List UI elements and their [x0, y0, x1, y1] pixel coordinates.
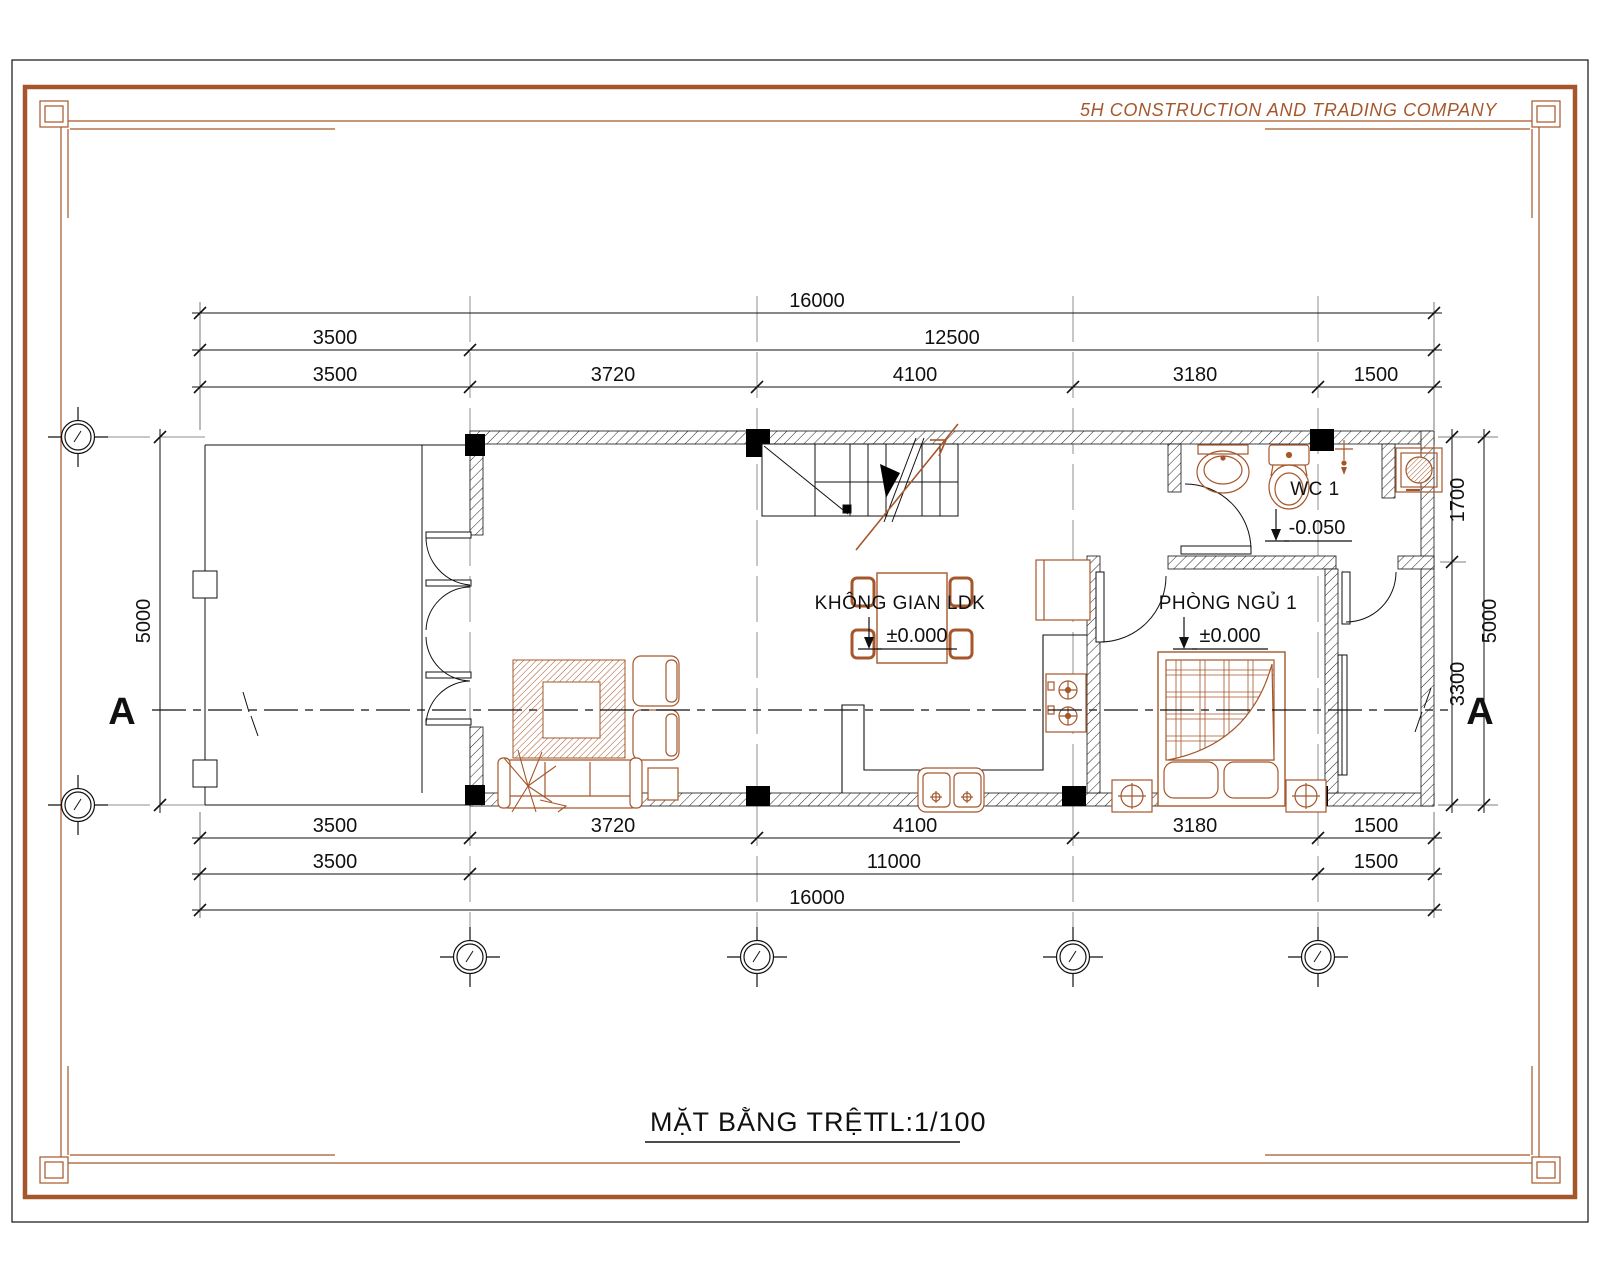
- dim-top-r3-4: 1500: [1354, 364, 1399, 386]
- armchairs: [633, 656, 679, 760]
- sheet-border: [12, 60, 1588, 1222]
- drawing-title: MẶT BẰNG TRỆT: [650, 1106, 881, 1137]
- dim-bot-r1-3: 3180: [1173, 815, 1218, 837]
- dim-top-r3-2: 4100: [893, 364, 938, 386]
- company-name: 5H CONSTRUCTION AND TRADING COMPANY: [1080, 100, 1498, 120]
- level-wc: -0.050: [1289, 517, 1346, 539]
- grid-bubble-2: [727, 927, 787, 987]
- dim-top-r3-3: 3180: [1173, 364, 1218, 386]
- label-ldk: KHÔNG GIAN LDK: [815, 592, 986, 614]
- dimension-text-top: 16000 3500 12500 3500 3720 4100 3180 150…: [313, 290, 1399, 386]
- washbasin: [1197, 445, 1249, 493]
- dim-top-r2-1: 12500: [924, 327, 980, 349]
- dim-bot-r2-1: 11000: [867, 851, 921, 873]
- section-label-right: A: [1466, 691, 1493, 733]
- kitchen-sink: [918, 768, 984, 812]
- section-line: A A: [108, 688, 1493, 736]
- floor-plan-drawing: 5H CONSTRUCTION AND TRADING COMPANY 1600…: [0, 0, 1600, 1280]
- grid-bubble-1: [440, 927, 500, 987]
- bedroom-window: [1338, 655, 1347, 775]
- grid-bubbles: [48, 407, 1348, 987]
- nightstand-right: [1286, 780, 1326, 812]
- rear-door: [1342, 572, 1396, 624]
- bedroom: [1112, 652, 1347, 812]
- section-label-left: A: [108, 691, 135, 733]
- shower-tap: [1335, 440, 1353, 475]
- dimension-text-bottom: 3500 3720 4100 3180 1500 3500 11000 1500…: [313, 815, 1399, 909]
- label-bedroom: PHÒNG NGỦ 1: [1159, 592, 1298, 614]
- grid-bubble-3: [1043, 927, 1103, 987]
- dimensions-left: [154, 429, 166, 813]
- dim-right-1700: 1700: [1447, 478, 1469, 523]
- dim-bot-r1-1: 3720: [591, 815, 636, 837]
- grid-lines: [48, 296, 1318, 938]
- side-table: [648, 768, 678, 800]
- dim-bot-r1-4: 1500: [1354, 815, 1399, 837]
- dim-bot-r2-2: 1500: [1354, 851, 1399, 873]
- dim-bot-overall: 16000: [789, 887, 845, 909]
- sheet-title: MẶT BẰNG TRỆT TL:1/100: [645, 1106, 987, 1142]
- living-room-rug: [513, 660, 625, 758]
- grid-bubble-left-top: [48, 407, 108, 467]
- dim-bot-r2-0: 3500: [313, 851, 358, 873]
- level-bedroom: ±0.000: [1199, 625, 1260, 647]
- dim-top-overall: 16000: [789, 290, 845, 312]
- dim-top-r2-0: 3500: [313, 327, 358, 349]
- dimensions-top: [192, 302, 1442, 430]
- dim-bot-r1-0: 3500: [313, 815, 358, 837]
- bedroom-door: [1096, 572, 1166, 642]
- grid-bubble-left-bottom: [48, 775, 108, 835]
- level-ldk: ±0.000: [886, 625, 947, 647]
- drawing-scale: TL:1/100: [872, 1107, 987, 1137]
- dim-top-r3-1: 3720: [591, 364, 636, 386]
- fridge: [1036, 560, 1090, 620]
- front-folding-door: [426, 532, 471, 725]
- dim-left-overall: 5000: [133, 599, 155, 644]
- wc-door: [1181, 484, 1251, 554]
- dim-top-r3-0: 3500: [313, 364, 358, 386]
- nightstand-left: [1112, 780, 1152, 812]
- grid-bubble-4: [1288, 927, 1348, 987]
- front-yard: [193, 445, 470, 805]
- floor-drain: [1396, 448, 1442, 492]
- stove: [1046, 674, 1086, 732]
- dim-right-5000: 5000: [1479, 599, 1501, 644]
- drawing-sheet: 5H CONSTRUCTION AND TRADING COMPANY 1600…: [0, 0, 1600, 1280]
- label-wc: WC 1: [1290, 479, 1340, 500]
- dim-bot-r1-2: 4100: [893, 815, 938, 837]
